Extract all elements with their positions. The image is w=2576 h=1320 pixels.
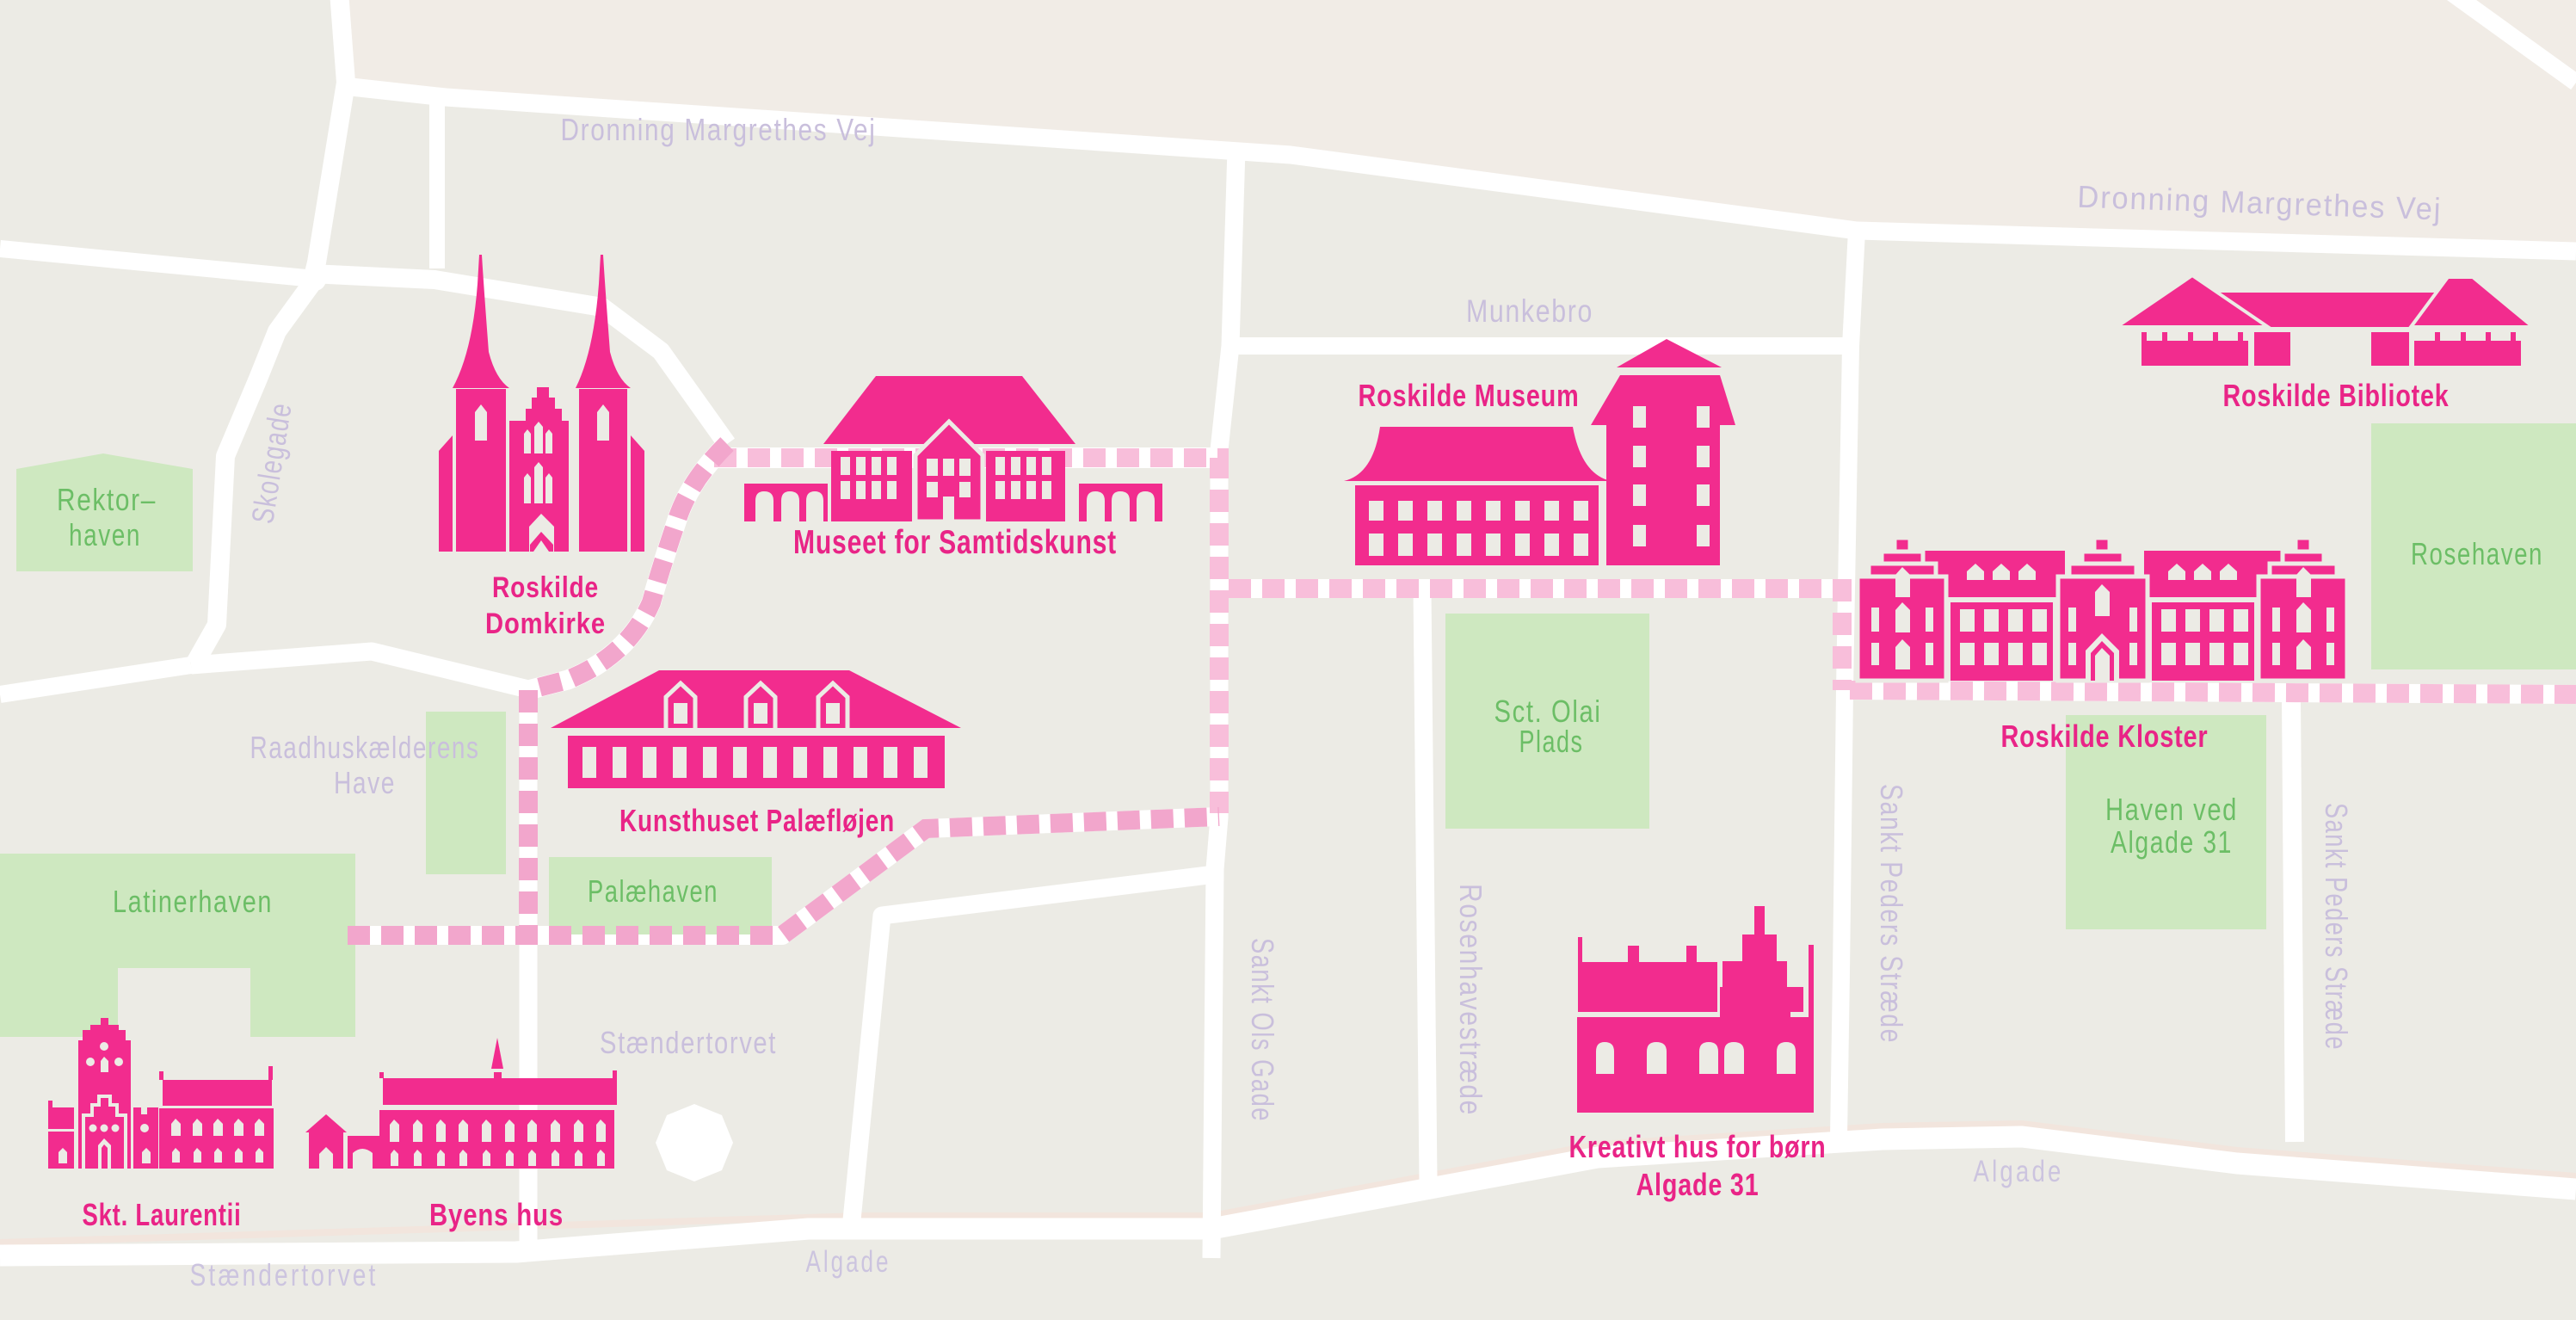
svg-text:Plads: Plads (1519, 724, 1584, 759)
svg-text:Rosenhavestræde: Rosenhavestræde (1453, 884, 1488, 1116)
svg-text:Have: Have (334, 765, 396, 800)
svg-text:Stændertorvet: Stændertorvet (600, 1025, 777, 1060)
svg-text:Rektor–: Rektor– (57, 482, 157, 517)
svg-text:Palæhaven: Palæhaven (588, 873, 718, 909)
svg-text:Latinerhaven: Latinerhaven (113, 884, 273, 919)
svg-text:Algade 31: Algade 31 (1636, 1167, 1759, 1202)
svg-text:Algade: Algade (806, 1245, 891, 1279)
svg-text:haven: haven (69, 517, 141, 552)
svg-text:Kreativt hus for børn: Kreativt hus for børn (1569, 1129, 1827, 1164)
svg-text:Dronning Margrethes Vej: Dronning Margrethes Vej (561, 112, 877, 147)
svg-text:Stændertorvet: Stændertorvet (190, 1257, 379, 1292)
svg-text:Roskilde: Roskilde (492, 571, 599, 604)
svg-text:Sankt Peders Stræde: Sankt Peders Stræde (2319, 803, 2354, 1051)
svg-text:Algade 31: Algade 31 (2111, 824, 2233, 860)
svg-text:Sankt Ols Gade: Sankt Ols Gade (1245, 938, 1280, 1122)
svg-text:Roskilde Bibliotek: Roskilde Bibliotek (2223, 378, 2450, 413)
svg-text:Munkebro: Munkebro (1466, 293, 1593, 329)
svg-text:Rosehaven: Rosehaven (2411, 536, 2543, 571)
svg-text:Sankt Peders Stræde: Sankt Peders Stræde (1874, 784, 1909, 1044)
svg-text:Museet for Samtidskunst: Museet for Samtidskunst (793, 524, 1117, 561)
svg-text:Kunsthuset Palæfløjen: Kunsthuset Palæfløjen (619, 803, 895, 838)
svg-text:Raadhuskælderens: Raadhuskælderens (250, 730, 480, 765)
svg-text:Roskilde Kloster: Roskilde Kloster (2001, 719, 2209, 754)
svg-text:Domkirke: Domkirke (485, 608, 606, 640)
svg-text:Roskilde Museum: Roskilde Museum (1359, 378, 1580, 413)
svg-text:Algade: Algade (1974, 1155, 2064, 1188)
svg-text:Skt. Laurentii: Skt. Laurentii (83, 1197, 242, 1232)
svg-text:Byens hus: Byens hus (429, 1197, 564, 1232)
svg-text:Haven ved: Haven ved (2105, 792, 2238, 827)
